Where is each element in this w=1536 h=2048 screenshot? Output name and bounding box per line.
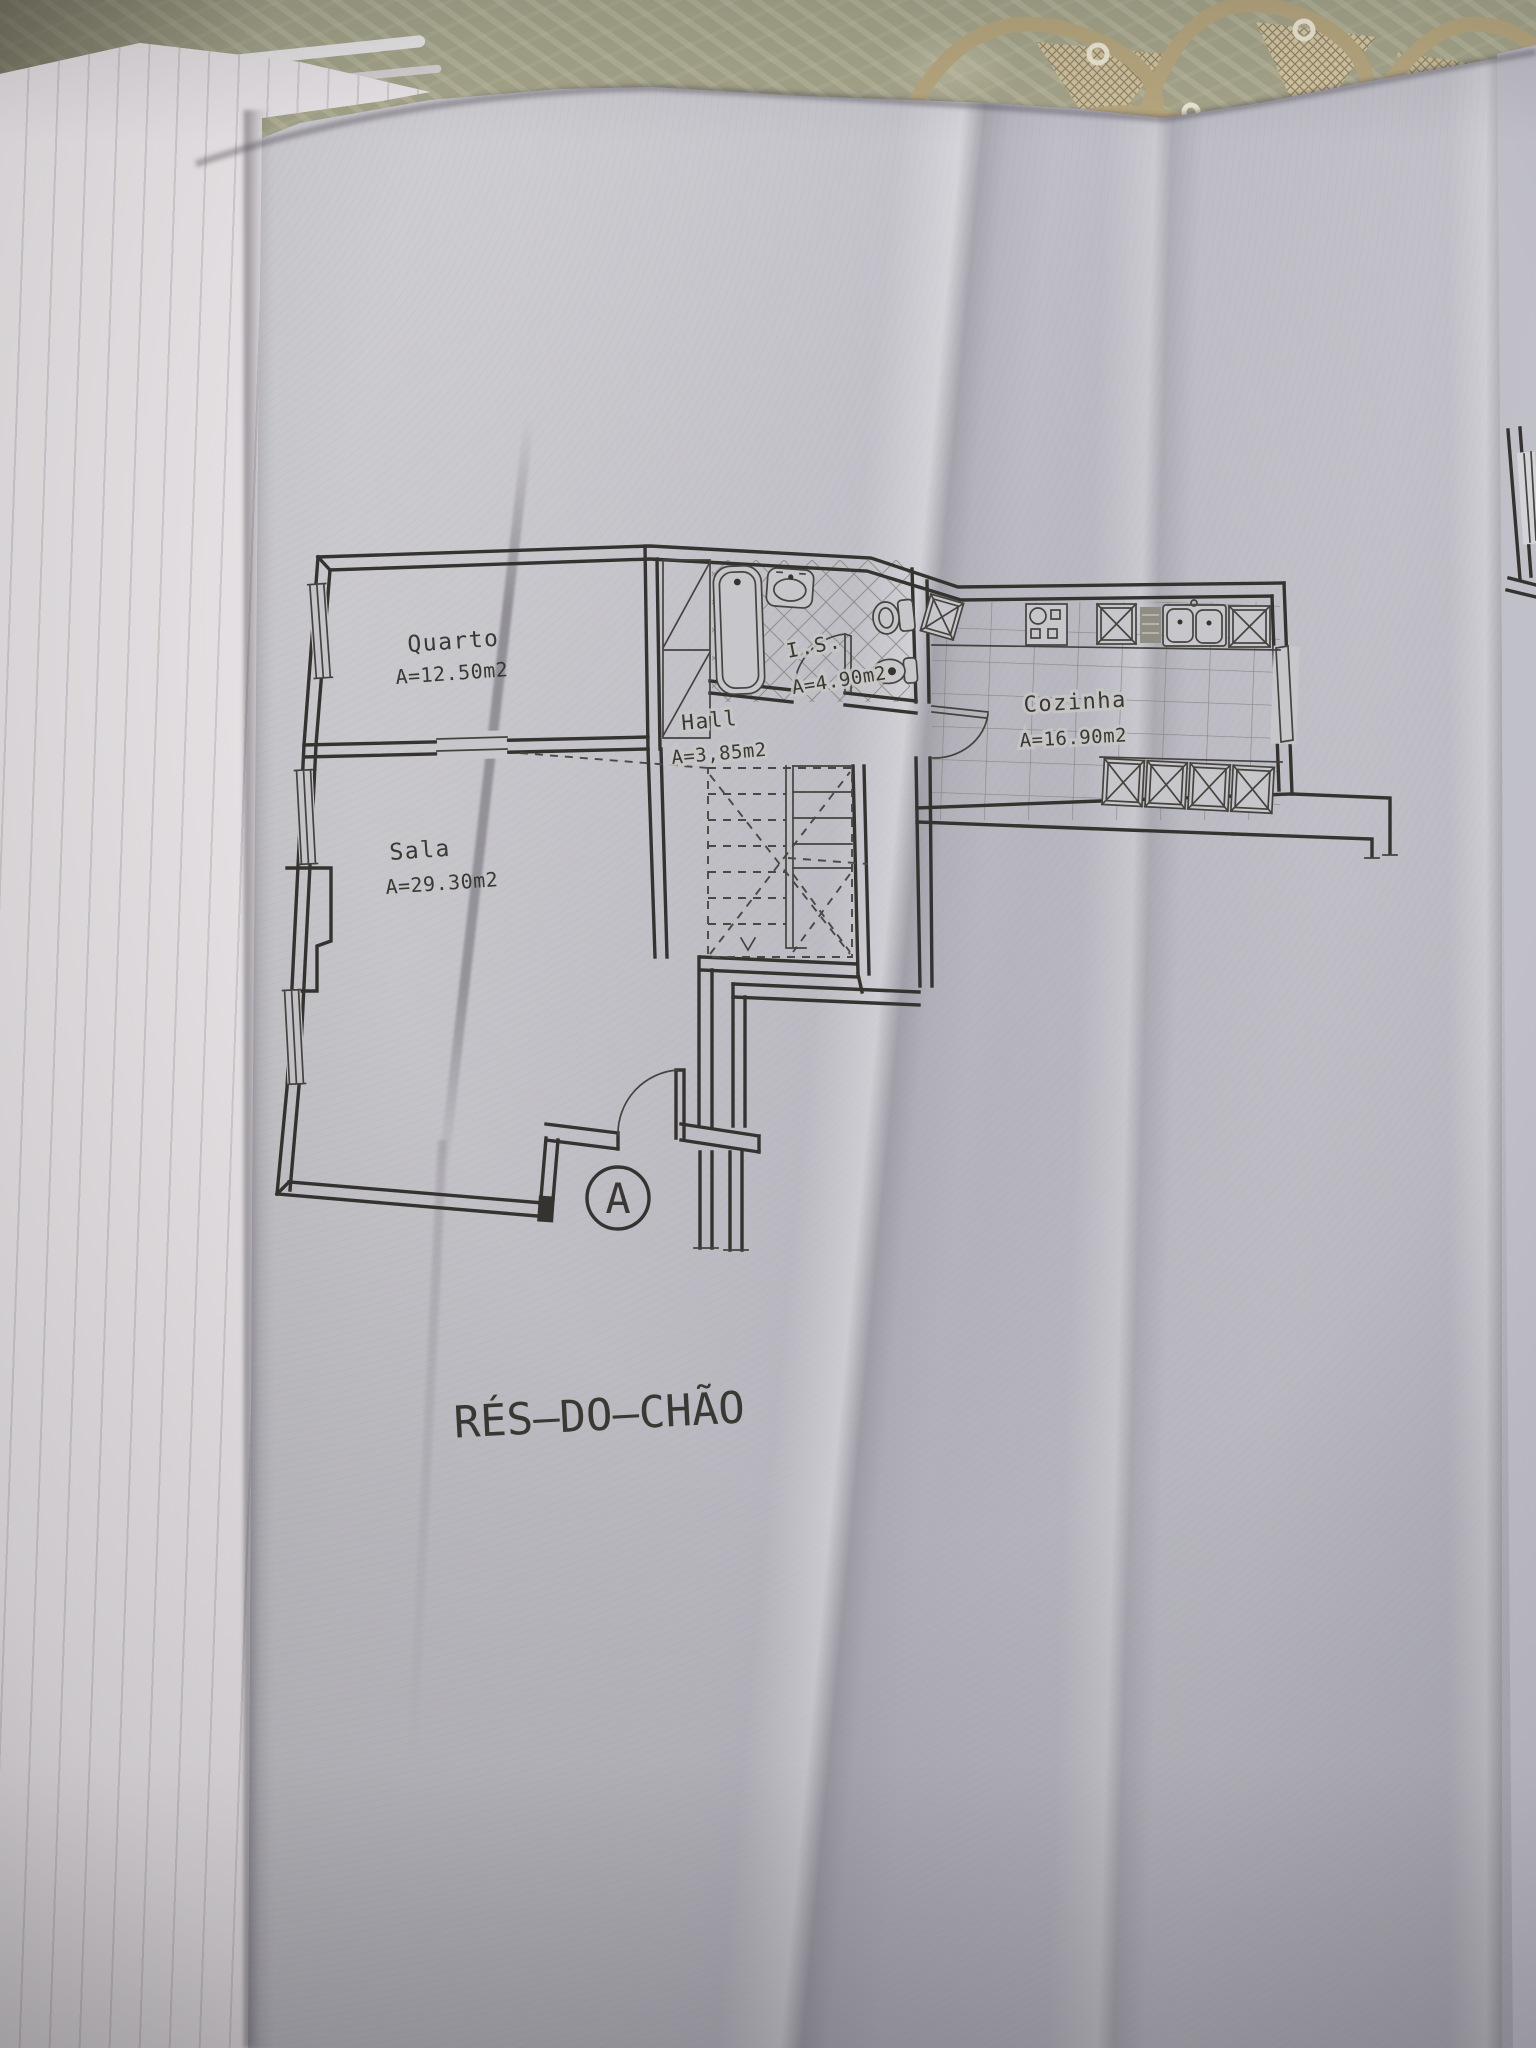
entrance-door-swing	[618, 1070, 684, 1138]
kitchen-sink-icon	[1163, 600, 1226, 646]
room-label-sala: Sala A=29.30m2	[385, 836, 499, 899]
staircase-symbol	[520, 753, 868, 957]
bathtub-icon	[713, 565, 765, 695]
quarto-door-opening	[437, 730, 507, 759]
room-area: A=3,85m2	[671, 739, 768, 769]
toilet-icon	[871, 599, 915, 635]
kitchen-cabinet-icon	[1097, 604, 1136, 644]
washbasin-icon	[766, 567, 815, 608]
page-top-edge-shadow	[196, 52, 1536, 164]
room-name: Sala	[389, 836, 452, 866]
stove-icon	[1026, 604, 1067, 645]
room-area: A=29.30m2	[385, 867, 499, 899]
room-name: Quarto	[407, 626, 501, 658]
room-area: A=12.50m2	[395, 657, 509, 689]
floor-plan-drawing: A Quarto A=12.50m2 Sala A=29.30m2 Hall A…	[0, 0, 1536, 2048]
photographed-floorplan-page: A Quarto A=12.50m2 Sala A=29.30m2 Hall A…	[0, 0, 1536, 2048]
adjacent-plan-fragment	[1507, 428, 1536, 597]
section-marker-letter: A	[605, 1174, 630, 1223]
kitchen-cabinet-icon	[1229, 606, 1270, 647]
section-marker: A	[587, 1167, 649, 1229]
window-kitchen	[1270, 646, 1299, 745]
floor-title: RÉS–DO–CHÃO	[452, 1380, 746, 1448]
room-name: Hall	[680, 706, 738, 735]
dishwasher-icon	[1140, 607, 1161, 643]
room-label-quarto: Quarto A=12.50m2	[395, 626, 509, 689]
